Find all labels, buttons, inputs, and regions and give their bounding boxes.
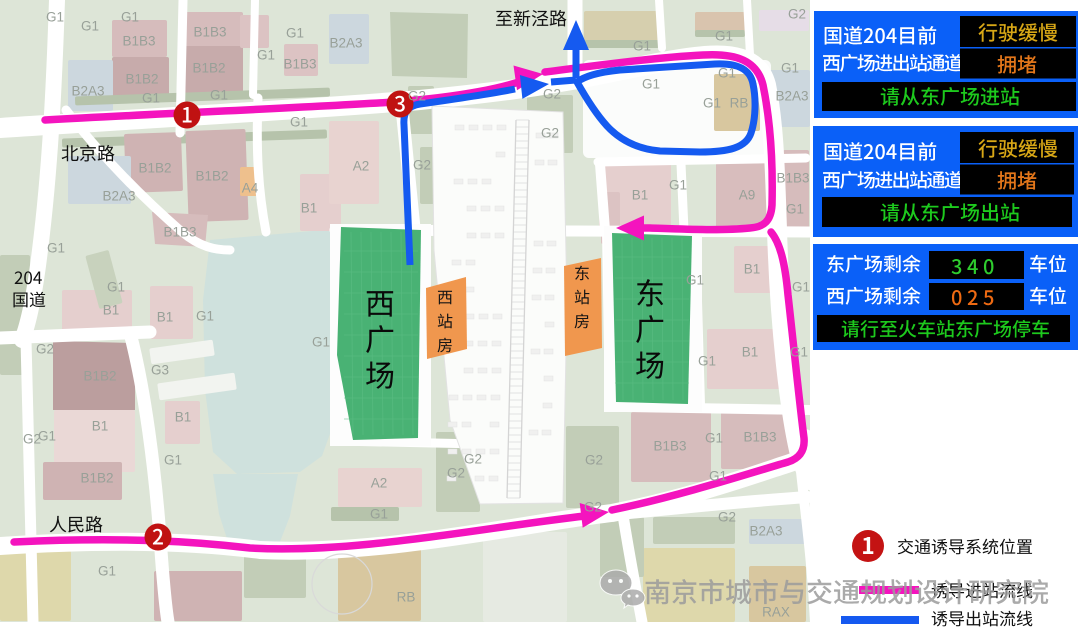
svg-text:G1: G1 [312, 335, 330, 350]
svg-text:RB: RB [730, 96, 749, 111]
svg-text:A2: A2 [353, 159, 370, 174]
svg-text:G1: G1 [709, 469, 727, 484]
svg-text:B1: B1 [157, 310, 174, 325]
svg-text:B1: B1 [744, 262, 761, 277]
svg-text:B2A3: B2A3 [775, 89, 808, 104]
svg-text:G1: G1 [46, 10, 64, 25]
svg-text:G2: G2 [36, 342, 54, 357]
svg-text:B1: B1 [742, 345, 759, 360]
svg-text:B1B3: B1B3 [193, 25, 226, 40]
svg-text:B1B2: B1B2 [138, 161, 171, 176]
svg-text:G3: G3 [151, 363, 169, 378]
svg-text:A4: A4 [242, 181, 259, 196]
svg-text:B2A3: B2A3 [329, 36, 362, 51]
svg-text:G1: G1 [47, 241, 65, 256]
svg-text:B1B3: B1B3 [122, 34, 155, 49]
svg-text:G1: G1 [790, 345, 808, 360]
svg-text:RB: RB [397, 590, 416, 605]
svg-text:A2: A2 [371, 476, 388, 491]
svg-text:G1: G1 [210, 88, 228, 103]
svg-text:G1: G1 [38, 429, 56, 444]
svg-text:G2: G2 [464, 452, 482, 467]
svg-text:G1: G1 [633, 39, 651, 54]
svg-text:G2: G2 [447, 466, 465, 481]
svg-text:G1: G1 [703, 96, 721, 111]
svg-text:B1B3: B1B3 [743, 430, 776, 445]
svg-text:G1: G1 [781, 61, 799, 76]
svg-text:G1: G1 [669, 178, 687, 193]
svg-text:B1: B1 [92, 419, 109, 434]
svg-text:G1: G1 [81, 19, 99, 34]
svg-text:G2: G2 [543, 87, 561, 102]
svg-text:G1: G1 [786, 202, 804, 217]
svg-text:G1: G1 [718, 66, 736, 81]
svg-text:G1: G1 [107, 280, 125, 295]
svg-text:G1: G1 [286, 26, 304, 41]
svg-text:B1B2: B1B2 [83, 369, 116, 384]
svg-text:G2: G2 [788, 7, 806, 22]
svg-text:G1: G1 [142, 91, 160, 106]
svg-text:B1B2: B1B2 [192, 61, 225, 76]
svg-text:RAX: RAX [762, 605, 790, 620]
svg-text:G2: G2 [718, 510, 736, 525]
svg-text:B1B3: B1B3 [776, 171, 809, 186]
svg-text:G1: G1 [196, 309, 214, 324]
svg-text:G1: G1 [642, 77, 660, 92]
svg-text:G2: G2 [413, 158, 431, 173]
svg-text:G2: G2 [585, 453, 603, 468]
svg-text:G2: G2 [408, 89, 426, 104]
svg-text:B1B2: B1B2 [80, 471, 113, 486]
svg-text:B2A3: B2A3 [749, 524, 782, 539]
svg-text:B1B2: B1B2 [125, 72, 158, 87]
svg-text:B1B3: B1B3 [163, 225, 196, 240]
svg-text:B1: B1 [632, 188, 649, 203]
svg-text:G1: G1 [164, 453, 182, 468]
svg-text:G2: G2 [584, 500, 602, 515]
svg-text:B1: B1 [301, 201, 318, 216]
svg-text:B1B3: B1B3 [283, 57, 316, 72]
svg-text:G1: G1 [715, 29, 733, 44]
svg-text:G1: G1 [705, 431, 723, 446]
svg-text:G1: G1 [370, 507, 388, 522]
svg-text:G1: G1 [290, 115, 308, 130]
svg-text:G1: G1 [257, 48, 275, 63]
svg-text:G1: G1 [792, 280, 810, 295]
svg-text:G1: G1 [686, 273, 704, 288]
svg-text:G2: G2 [541, 126, 559, 141]
svg-text:G1: G1 [698, 354, 716, 369]
svg-text:B1B2: B1B2 [195, 169, 228, 184]
svg-text:B2A3: B2A3 [102, 189, 135, 204]
svg-text:B1: B1 [175, 410, 192, 425]
svg-text:A9: A9 [739, 188, 756, 203]
svg-text:B2A3: B2A3 [71, 84, 104, 99]
svg-text:B1B3: B1B3 [653, 439, 686, 454]
svg-text:G1: G1 [121, 10, 139, 25]
svg-text:B1: B1 [103, 303, 120, 318]
svg-text:G1: G1 [98, 564, 116, 579]
